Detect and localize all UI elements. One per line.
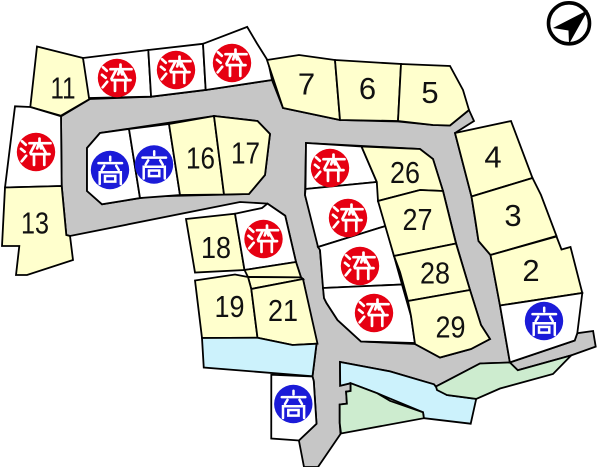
svg-text:16: 16 [186,141,215,176]
svg-text:21: 21 [268,293,298,328]
svg-text:7: 7 [298,67,315,102]
svg-text:18: 18 [201,230,231,265]
svg-text:11: 11 [51,71,76,106]
svg-text:19: 19 [215,289,245,324]
svg-text:3: 3 [504,198,521,233]
svg-text:28: 28 [420,256,450,291]
svg-text:13: 13 [21,206,49,241]
svg-text:17: 17 [231,136,260,171]
svg-text:29: 29 [436,310,466,345]
svg-text:5: 5 [421,75,438,110]
svg-text:6: 6 [359,71,376,106]
svg-text:27: 27 [403,202,433,237]
svg-text:26: 26 [390,155,420,190]
svg-text:4: 4 [484,140,501,175]
svg-text:2: 2 [522,253,539,288]
